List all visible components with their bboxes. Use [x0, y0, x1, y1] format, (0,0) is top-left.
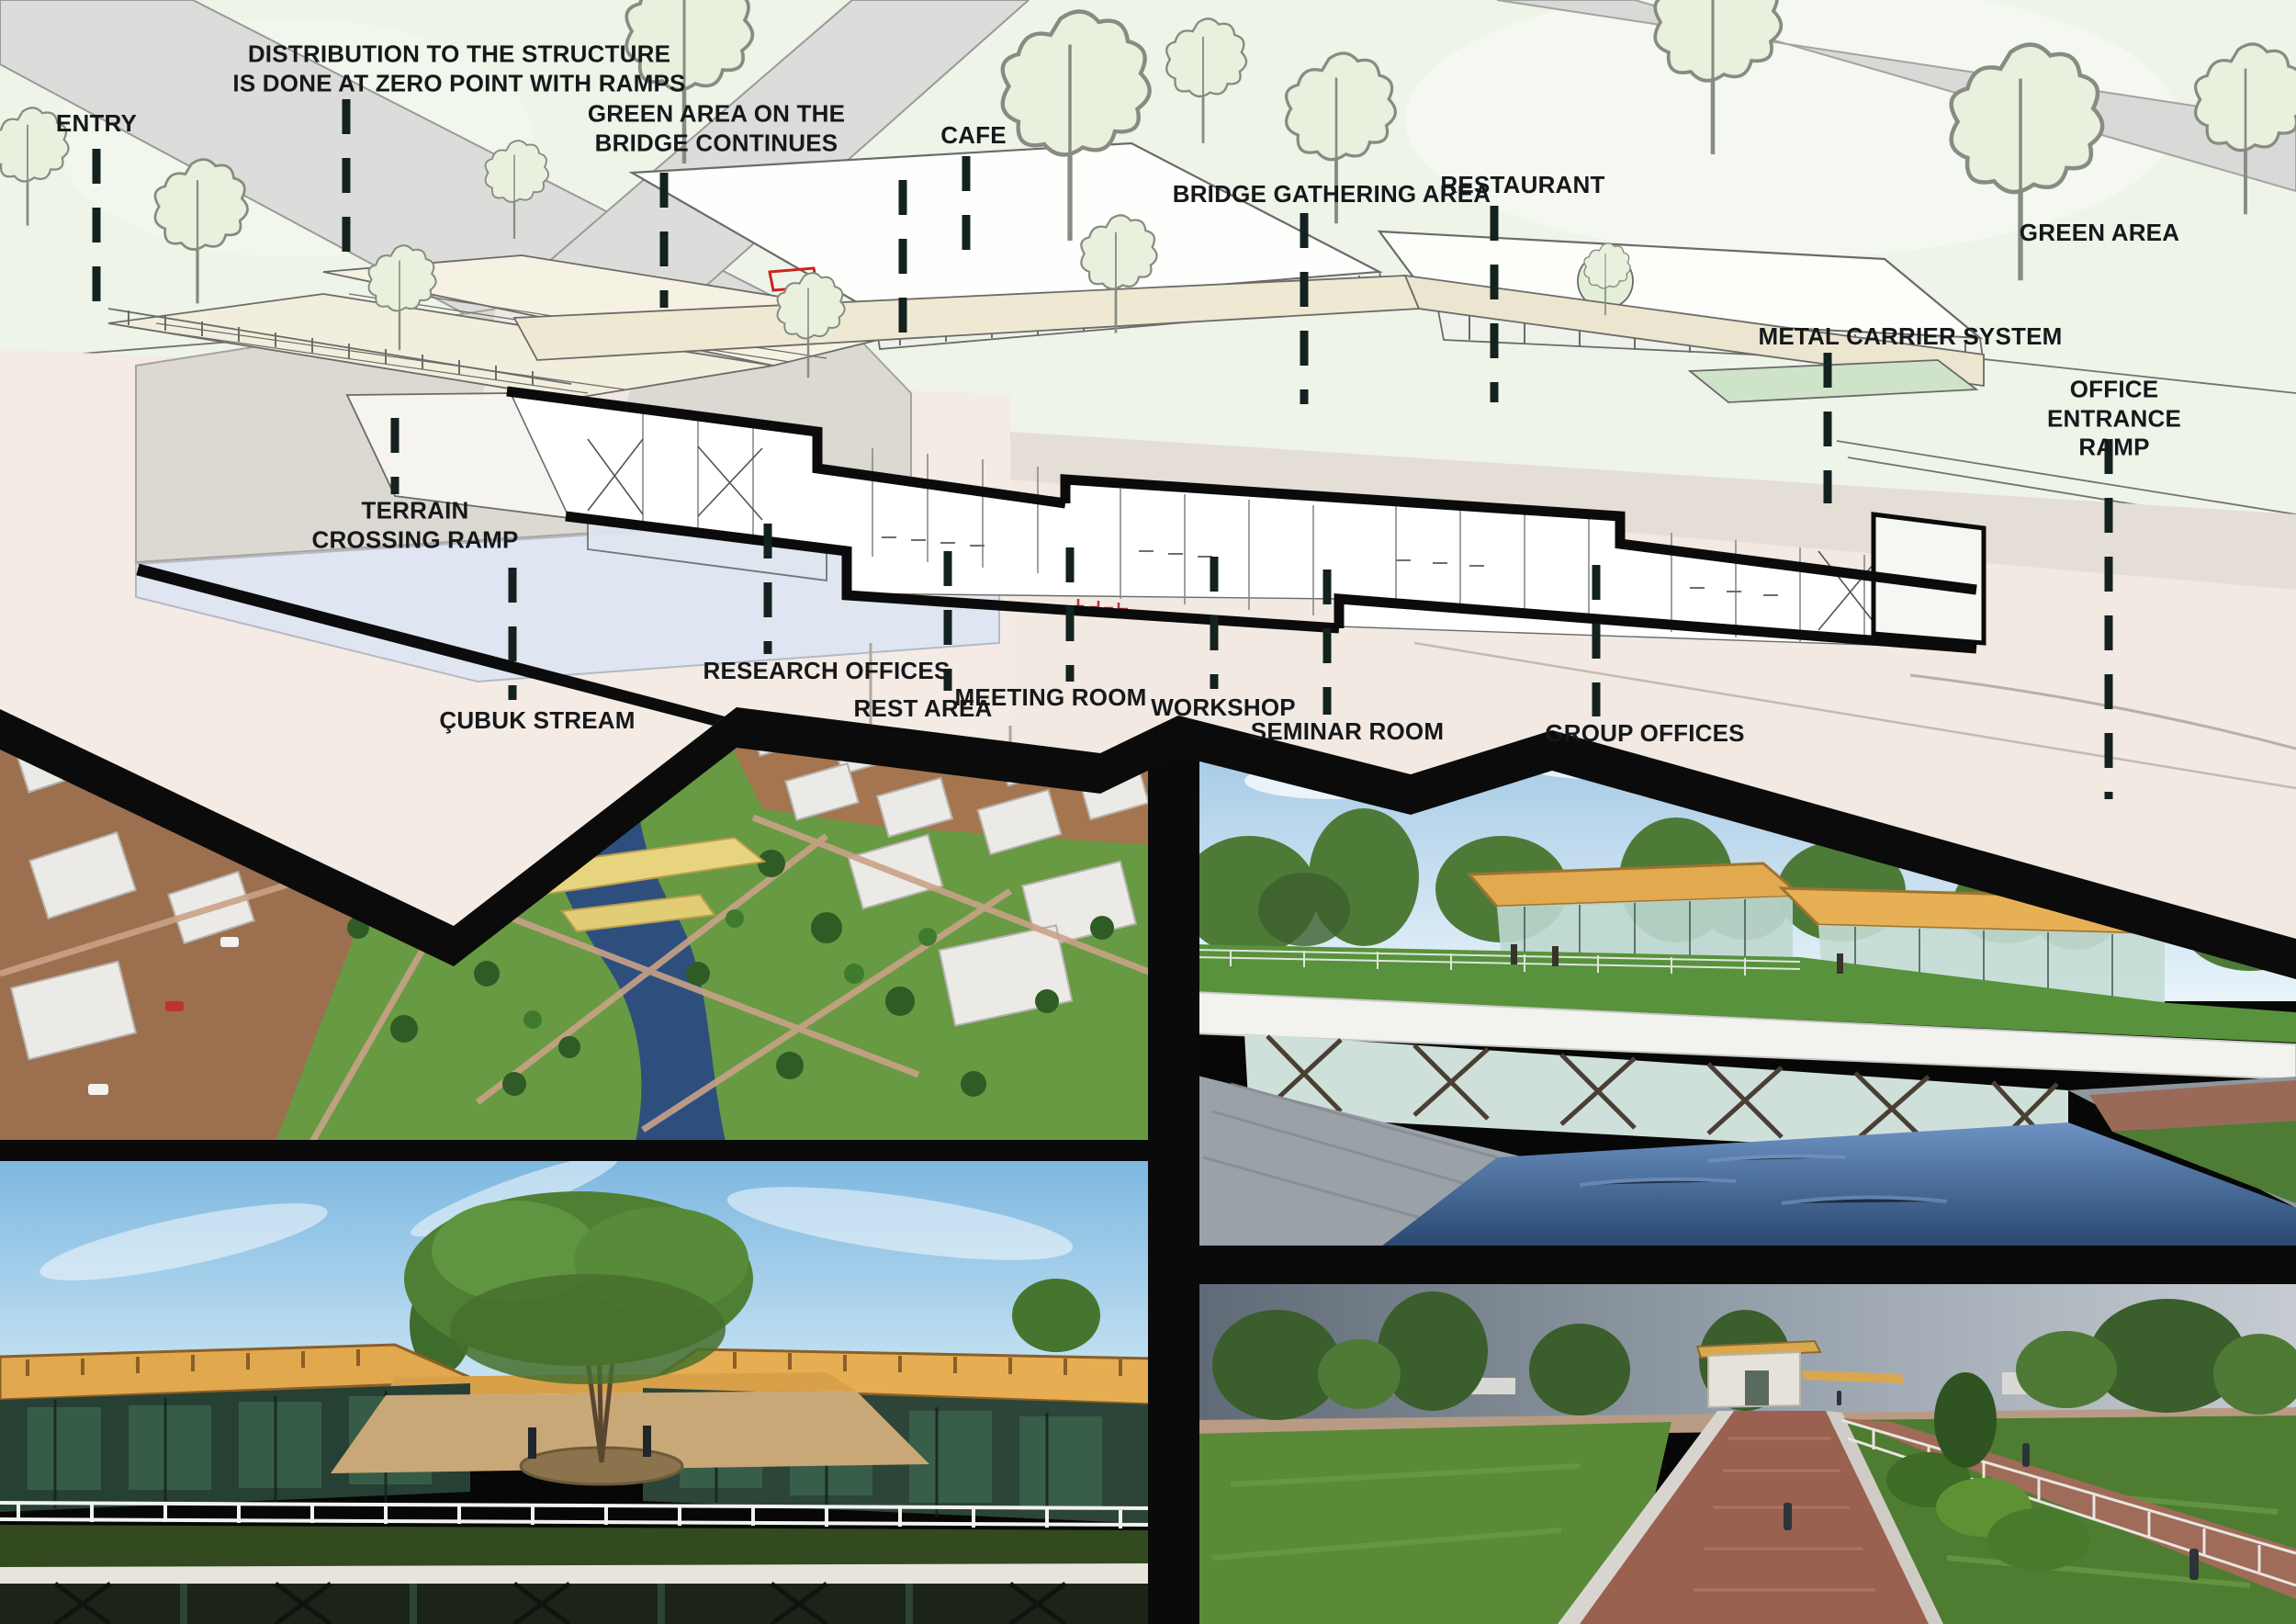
photo-divider-right-horizontal [1194, 1246, 2296, 1284]
roof-plaza-render-art [0, 1159, 1154, 1624]
photo-roof-plaza-render [0, 1159, 1154, 1624]
presentation-board: DISTRIBUTION TO THE STRUCTURE IS DONE AT… [0, 0, 2296, 1624]
photo-entrance-ramp-render [1194, 1282, 2296, 1624]
axonometric-section-diagram [0, 0, 2296, 1010]
photo-divider-left-horizontal [0, 1140, 1154, 1161]
entrance-ramp-render-art [1194, 1282, 2296, 1624]
